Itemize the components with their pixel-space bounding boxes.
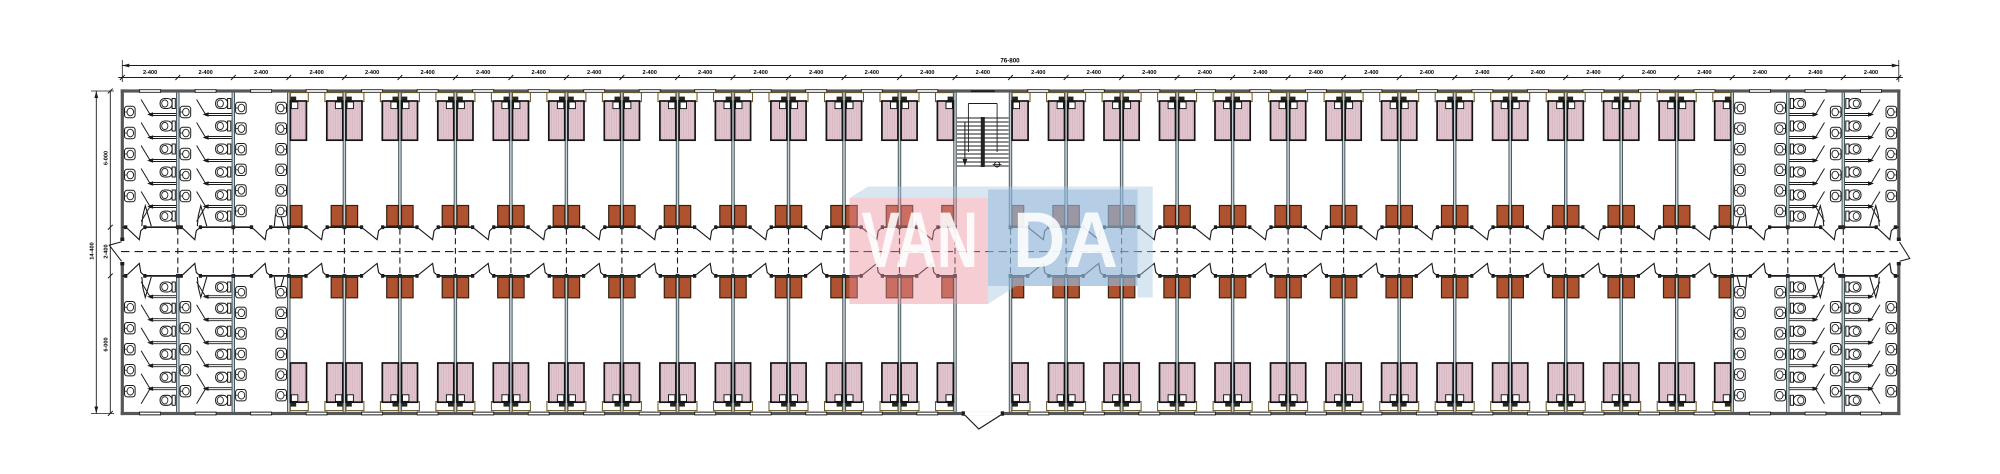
svg-text:2-400: 2-400 xyxy=(809,70,823,76)
svg-text:6-000: 6-000 xyxy=(104,151,110,165)
svg-text:2-400: 2-400 xyxy=(143,70,157,76)
svg-text:2-400: 2-400 xyxy=(1420,70,1434,76)
svg-text:2-400: 2-400 xyxy=(587,70,601,76)
svg-text:2-400: 2-400 xyxy=(1142,70,1156,76)
svg-text:2-400: 2-400 xyxy=(1586,70,1600,76)
svg-text:2-400: 2-400 xyxy=(1253,70,1267,76)
svg-text:2-400: 2-400 xyxy=(1198,70,1212,76)
svg-text:2-400: 2-400 xyxy=(420,70,434,76)
svg-text:2-400: 2-400 xyxy=(1475,70,1489,76)
svg-text:2-400: 2-400 xyxy=(365,70,379,76)
svg-text:2-400: 2-400 xyxy=(198,70,212,76)
svg-text:2-400: 2-400 xyxy=(104,244,110,258)
svg-text:2-400: 2-400 xyxy=(254,70,268,76)
svg-text:2-400: 2-400 xyxy=(309,70,323,76)
svg-text:2-400: 2-400 xyxy=(1642,70,1656,76)
svg-text:2-400: 2-400 xyxy=(1087,70,1101,76)
svg-text:2-400: 2-400 xyxy=(976,70,990,76)
svg-text:2-400: 2-400 xyxy=(1864,70,1878,76)
svg-text:2-400: 2-400 xyxy=(698,70,712,76)
svg-text:2-400: 2-400 xyxy=(532,70,546,76)
svg-text:2-400: 2-400 xyxy=(1753,70,1767,76)
svg-text:2-400: 2-400 xyxy=(1697,70,1711,76)
svg-text:DA: DA xyxy=(1013,196,1118,284)
svg-text:VAN: VAN xyxy=(862,196,979,284)
svg-text:2-400: 2-400 xyxy=(1364,70,1378,76)
svg-text:6-000: 6-000 xyxy=(104,337,110,351)
svg-text:14-400: 14-400 xyxy=(90,242,96,259)
svg-text:2-400: 2-400 xyxy=(865,70,879,76)
svg-text:2-400: 2-400 xyxy=(1808,70,1822,76)
svg-text:2-400: 2-400 xyxy=(754,70,768,76)
svg-text:2-400: 2-400 xyxy=(1531,70,1545,76)
svg-text:2-400: 2-400 xyxy=(1031,70,1045,76)
svg-text:2-400: 2-400 xyxy=(643,70,657,76)
svg-text:76-800: 76-800 xyxy=(1000,58,1020,65)
svg-text:2-400: 2-400 xyxy=(1309,70,1323,76)
svg-text:2-400: 2-400 xyxy=(920,70,934,76)
svg-text:2-400: 2-400 xyxy=(476,70,490,76)
